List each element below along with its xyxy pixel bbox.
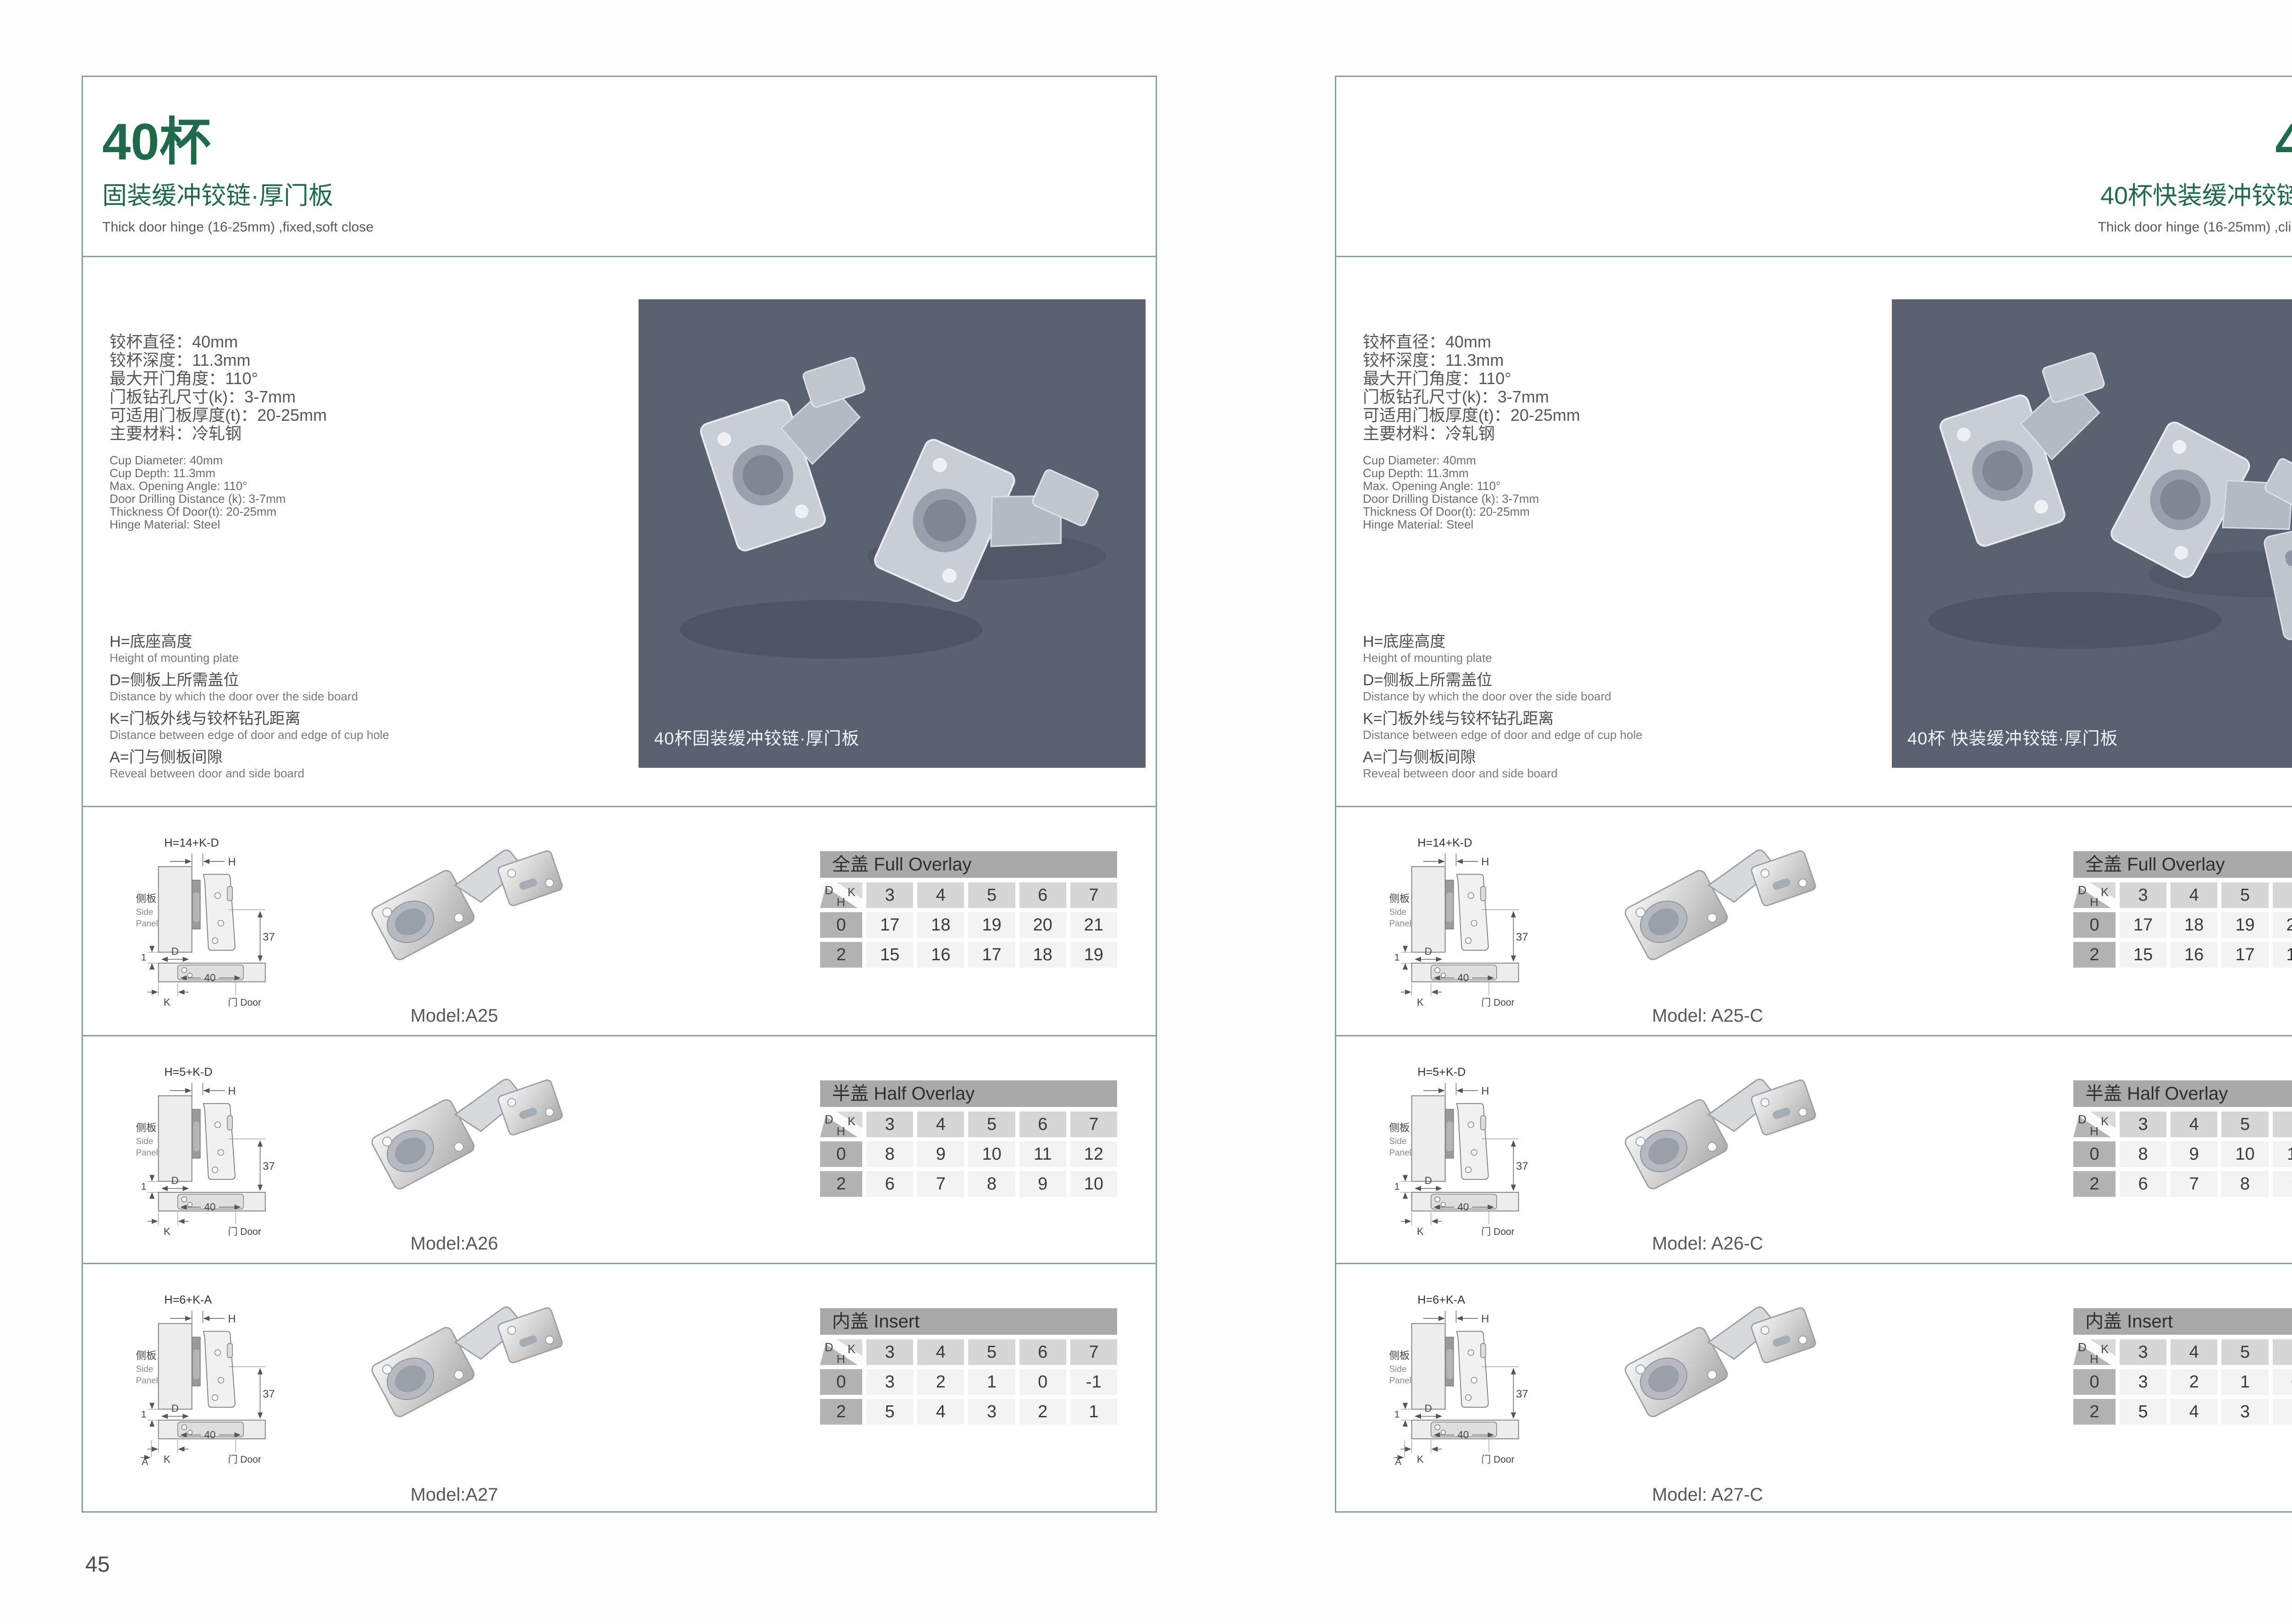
spec-line-en: Max. Opening Angle: 110°	[1363, 479, 1539, 492]
side-panel-label-en1: Side	[136, 908, 153, 917]
k-header-cell: 5	[2221, 1112, 2268, 1137]
value-cell: 9	[2171, 1141, 2217, 1167]
dim-one-label: 1	[1394, 1409, 1400, 1420]
spec-line-en: Door Drilling Distance (k): 3-7mm	[1363, 492, 1539, 505]
table-corner: D K H	[820, 1112, 862, 1137]
dim-a-label: A	[142, 1457, 148, 1467]
spec-line-en: Door Drilling Distance (k): 3-7mm	[110, 492, 286, 505]
installation-diagram: H=14+K-D H 侧板 Side Panel D 1 37	[1382, 814, 1533, 1027]
h-header-cell: 2	[2073, 1399, 2116, 1425]
side-panel-label-en2: Panel	[1389, 1376, 1411, 1386]
value-cell: 3	[866, 1369, 913, 1395]
value-cell: 9	[917, 1141, 964, 1167]
table-grid: D K H 34567 0 1718192021 2	[2073, 882, 2292, 968]
value-cell: 20	[1019, 912, 1066, 938]
legend-cn: D=侧板上所需盖位	[110, 671, 389, 689]
corner-k: K	[2101, 1342, 2109, 1356]
legend-en: Reveal between door and side board	[1363, 766, 1642, 780]
installation-diagram-drawing: H=6+K-A H 侧板 Side Panel D 1 37	[1382, 1271, 1533, 1484]
door-label: 门 Door	[228, 1226, 261, 1237]
page-right: 40杯 40杯快装缓冲铰链·厚门板 Thick door hinge (16-2…	[1335, 76, 2292, 1513]
installation-diagram: H=6+K-A H 侧板 Side Panel D 1 37	[1382, 1271, 1533, 1484]
spec-line-cn: 铰杯直径：40mm	[110, 333, 327, 351]
model-label: Model: A25-C	[1579, 1006, 1836, 1026]
dim-37-label: 37	[1516, 931, 1528, 943]
model-label: Model: A26-C	[1579, 1233, 1836, 1254]
photo-illustration	[1892, 299, 2292, 768]
value-cell: 2	[2171, 1369, 2217, 1395]
value-cell: 17	[866, 912, 913, 938]
installation-diagram-drawing: H=6+K-A H 侧板 Side Panel D 1 37	[129, 1271, 280, 1484]
k-header-cell: 6	[2273, 1112, 2292, 1137]
diagram-formula: H=6+K-A	[1417, 1294, 1465, 1306]
value-cell: 9	[2273, 1171, 2292, 1197]
corner-k: K	[2101, 885, 2109, 899]
corner-h: H	[2090, 1124, 2099, 1137]
diagram-formula: H=5+K-D	[164, 1066, 212, 1079]
hinge-photo-illustration	[639, 299, 1146, 768]
corner-k: K	[848, 1114, 856, 1128]
value-cell: 4	[917, 1399, 964, 1425]
side-panel-label-cn: 侧板	[136, 1122, 156, 1134]
model-label: Model:A27	[326, 1485, 583, 1505]
h-header-cell: 2	[2073, 942, 2116, 968]
legend-en: Distance between edge of door and edge o…	[110, 728, 389, 742]
k-header-cell: 4	[2171, 1112, 2217, 1137]
side-panel-label-en1: Side	[136, 1137, 153, 1146]
dim-40-label: 40	[1457, 1201, 1469, 1213]
side-panel-label-cn: 侧板	[1389, 1122, 1410, 1134]
diagram-formula: H=14+K-D	[164, 837, 219, 849]
value-cell: 9	[1019, 1171, 1066, 1197]
value-cell: 19	[968, 912, 1015, 938]
side-panel-label-en1: Side	[136, 1365, 153, 1374]
hinge-illustration	[326, 819, 583, 993]
value-cell: 8	[2120, 1141, 2166, 1167]
dim-one-label: 1	[1394, 952, 1400, 963]
value-cell: 3	[2120, 1369, 2166, 1395]
hinge-illustration	[1579, 1276, 1836, 1450]
value-cell: 2	[2273, 1399, 2292, 1425]
dim-one-label: 1	[141, 1182, 147, 1192]
legend-cn: K=门板外线与铰杯钻孔距离	[1363, 710, 1642, 728]
corner-d: D	[825, 1340, 833, 1354]
side-panel-label-en2: Panel	[1389, 919, 1411, 929]
door-label: 门 Door	[1481, 1454, 1515, 1465]
page-tagline: Thick door hinge (16-25mm) ,fixed,soft c…	[102, 220, 1130, 235]
spec-line-cn: 可适用门板厚度(t)：20-25mm	[110, 406, 327, 424]
k-header-cell: 5	[968, 1339, 1015, 1365]
overlay-table: 全盖 Full Overlay D K H 34567	[2073, 851, 2292, 968]
value-cell: 11	[2273, 1141, 2292, 1167]
value-cell: 4	[2171, 1399, 2217, 1425]
door-label: 门 Door	[228, 1454, 261, 1465]
h-header-cell: 2	[820, 1399, 862, 1425]
hinge-photo-illustration	[1892, 299, 2292, 768]
value-cell: 16	[917, 942, 964, 968]
hinge-illustration	[1579, 1048, 1836, 1222]
k-header-cell: 6	[1019, 1112, 1066, 1137]
dim-37-label: 37	[263, 1388, 275, 1400]
dim-one-label: 1	[1394, 1182, 1400, 1192]
side-panel-label-en1: Side	[1389, 1137, 1406, 1146]
dim-k-label: K	[164, 1453, 171, 1465]
hinge-product-illustration	[1579, 1048, 1836, 1222]
k-header-cell: 5	[968, 1112, 1015, 1137]
corner-h: H	[2090, 1352, 2099, 1365]
corner-k: K	[848, 885, 856, 899]
installation-diagram-drawing: H=5+K-D H 侧板 Side Panel D 1 37	[129, 1043, 280, 1256]
dim-k-label: K	[164, 1226, 171, 1237]
page-number-left: 45	[85, 1552, 110, 1577]
legend-cn: K=门板外线与铰杯钻孔距离	[110, 710, 389, 728]
k-header-cell: 5	[2221, 1339, 2268, 1365]
dim-37-label: 37	[263, 931, 275, 943]
diagram-formula: H=5+K-D	[1417, 1066, 1466, 1079]
legend-cn: A=门与侧板间隙	[110, 748, 389, 766]
legend-item: D=侧板上所需盖位 Distance by which the door ove…	[110, 671, 389, 703]
corner-d: D	[2078, 883, 2087, 897]
hinge-illustration	[326, 1048, 583, 1222]
legend-en: Distance by which the door over the side…	[1363, 689, 1642, 703]
installation-diagram: H=6+K-A H 侧板 Side Panel D 1 37	[129, 1271, 280, 1484]
product-row-insert: H=6+K-A H 侧板 Side Panel D 1 37	[1336, 1264, 2292, 1513]
dim-h-label: H	[1481, 1085, 1489, 1097]
page-tagline: Thick door hinge (16-25mm) ,clip on ,sof…	[1355, 220, 2292, 235]
installation-diagram-drawing: H=14+K-D H 侧板 Side Panel D 1 37	[129, 814, 280, 1027]
value-cell: 10	[968, 1141, 1015, 1167]
k-header-cell: 7	[1070, 882, 1117, 908]
page-left: 40杯 固装缓冲铰链·厚门板 Thick door hinge (16-25mm…	[82, 76, 1157, 1513]
corner-h: H	[2090, 895, 2099, 908]
value-cell: 12	[1070, 1141, 1117, 1167]
spec-line-en: Cup Depth: 11.3mm	[110, 467, 286, 479]
diagram-formula: H=14+K-D	[1417, 837, 1472, 849]
table-title: 全盖 Full Overlay	[820, 851, 1117, 878]
table-corner: D K H	[820, 1339, 862, 1365]
value-cell: 1	[968, 1369, 1015, 1395]
legend-en: Distance by which the door over the side…	[110, 689, 389, 703]
spec-line-cn: 门板钻孔尺寸(k)：3-7mm	[110, 388, 327, 406]
value-cell: 1	[2221, 1369, 2268, 1395]
legend-en: Distance between edge of door and edge o…	[1363, 728, 1642, 742]
dim-h-label: H	[228, 1085, 236, 1097]
overlay-table: 全盖 Full Overlay D K H 34567	[820, 851, 1117, 968]
legend-item: A=门与侧板间隙 Reveal between door and side bo…	[110, 748, 389, 780]
dim-d-label: D	[1425, 1403, 1432, 1414]
k-header-cell: 5	[2221, 882, 2268, 908]
photo-illustration	[639, 299, 1146, 768]
door-label: 门 Door	[1481, 1226, 1515, 1237]
page-subtitle: 40杯快装缓冲铰链·厚门板	[1355, 175, 2292, 211]
hinge-product-illustration	[326, 1048, 583, 1222]
value-cell: 19	[1070, 942, 1117, 968]
product-photo: 40杯 快装缓冲铰链·厚门板	[1892, 299, 2292, 768]
dim-one-label: 1	[141, 1409, 147, 1420]
value-cell: 3	[968, 1399, 1015, 1425]
specs-en: Cup Diameter: 40mmCup Depth: 11.3mmMax. …	[1363, 454, 1539, 531]
photo-caption: 40杯固装缓冲铰链·厚门板	[654, 724, 859, 749]
value-cell: -1	[1070, 1369, 1117, 1395]
value-cell: 17	[2120, 912, 2166, 938]
spec-line-cn: 最大开门角度：110°	[110, 369, 327, 388]
table-title: 半盖 Half Overlay	[820, 1080, 1117, 1107]
h-header-cell: 0	[820, 1369, 862, 1395]
k-header-cell: 3	[2120, 882, 2166, 908]
spec-line-en: Cup Diameter: 40mm	[1363, 454, 1539, 467]
value-cell: 7	[2171, 1171, 2217, 1197]
h-header-cell: 2	[820, 1171, 862, 1197]
value-cell: 8	[866, 1141, 913, 1167]
corner-h: H	[837, 895, 845, 908]
dim-37-label: 37	[1516, 1160, 1528, 1173]
value-cell: 18	[2273, 942, 2292, 968]
installation-diagram-drawing: H=5+K-D H 侧板 Side Panel D 1 37	[1382, 1043, 1533, 1256]
k-header-cell: 4	[917, 882, 964, 908]
dim-k-label: K	[164, 996, 171, 1008]
value-cell: 16	[2171, 942, 2217, 968]
table-grid: D K H 34567 0 3210-1 2 543	[820, 1339, 1117, 1425]
value-cell: 6	[2120, 1171, 2166, 1197]
dim-40-label: 40	[204, 972, 215, 984]
dim-d-label: D	[171, 1175, 179, 1186]
side-panel-label-en2: Panel	[136, 1376, 158, 1386]
legend-en: Height of mounting plate	[110, 651, 389, 665]
side-panel-label-cn: 侧板	[136, 893, 156, 904]
value-cell: 10	[1070, 1171, 1117, 1197]
spec-line-en: Thickness Of Door(t): 20-25mm	[110, 505, 286, 518]
dim-40-label: 40	[204, 1429, 215, 1441]
h-header-cell: 0	[820, 1141, 862, 1167]
spec-line-cn: 铰杯深度：11.3mm	[110, 351, 327, 369]
spec-line-cn: 铰杯深度：11.3mm	[1363, 351, 1580, 369]
corner-h: H	[837, 1352, 845, 1365]
k-header-cell: 6	[1019, 882, 1066, 908]
model-label: Model:A26	[326, 1233, 583, 1254]
dim-h-label: H	[1481, 856, 1489, 868]
k-header-cell: 3	[2120, 1339, 2166, 1365]
side-panel-label-en1: Side	[1389, 1365, 1406, 1374]
dim-a-label: A	[1395, 1457, 1401, 1467]
value-cell: 0	[1019, 1369, 1066, 1395]
spec-line-en: Thickness Of Door(t): 20-25mm	[1363, 505, 1539, 518]
specs-en: Cup Diameter: 40mmCup Depth: 11.3mmMax. …	[110, 454, 286, 531]
installation-diagram: H=5+K-D H 侧板 Side Panel D 1 37	[129, 1043, 280, 1256]
hinge-illustration	[1579, 819, 1836, 993]
spec-line-cn: 最大开门角度：110°	[1363, 369, 1580, 388]
value-cell: 3	[2221, 1399, 2268, 1425]
page-header: 40杯 固装缓冲铰链·厚门板 Thick door hinge (16-25mm…	[83, 77, 1156, 256]
dimension-legend: H=底座高度 Height of mounting plate D=侧板上所需盖…	[110, 633, 389, 787]
specs-cn: 铰杯直径：40mm铰杯深度：11.3mm最大开门角度：110°门板钻孔尺寸(k)…	[110, 333, 327, 443]
value-cell: 11	[1019, 1141, 1066, 1167]
k-header-cell: 4	[917, 1339, 964, 1365]
k-header-cell: 6	[1019, 1339, 1066, 1365]
corner-k: K	[848, 1342, 856, 1356]
value-cell: 19	[2221, 912, 2268, 938]
spec-line-cn: 铰杯直径：40mm	[1363, 333, 1580, 351]
value-cell: 20	[2273, 912, 2292, 938]
page-header: 40杯 40杯快装缓冲铰链·厚门板 Thick door hinge (16-2…	[1336, 77, 2292, 256]
dim-37-label: 37	[1516, 1388, 1528, 1400]
hinge-product-illustration	[1579, 1276, 1836, 1450]
hinge-product-illustration	[1579, 819, 1836, 993]
h-header-cell: 2	[820, 942, 862, 968]
table-title: 内盖 Insert	[2073, 1308, 2292, 1335]
door-label: 门 Door	[228, 997, 261, 1008]
h-header-cell: 2	[2073, 1171, 2116, 1197]
legend-item: H=底座高度 Height of mounting plate	[110, 633, 389, 665]
value-cell: 8	[968, 1171, 1015, 1197]
corner-d: D	[825, 883, 833, 897]
door-label: 门 Door	[1481, 997, 1515, 1008]
installation-diagram-drawing: H=14+K-D H 侧板 Side Panel D 1 37	[1382, 814, 1533, 1027]
k-header-cell: 4	[2171, 1339, 2217, 1365]
k-header-cell: 3	[866, 882, 913, 908]
product-photo: 40杯固装缓冲铰链·厚门板	[639, 299, 1146, 768]
value-cell: 1	[1070, 1399, 1117, 1425]
overlay-table: 内盖 Insert D K H 34567 0	[820, 1308, 1117, 1425]
value-cell: 6	[866, 1171, 913, 1197]
dim-h-label: H	[1481, 1313, 1489, 1325]
dim-a-group: A	[1394, 1440, 1405, 1467]
dim-h-label: H	[228, 1313, 236, 1325]
installation-diagram: H=14+K-D H 侧板 Side Panel D 1 37	[129, 814, 280, 1027]
spec-line-en: Cup Depth: 11.3mm	[1363, 467, 1539, 479]
table-title: 内盖 Insert	[820, 1308, 1117, 1335]
legend-cn: D=侧板上所需盖位	[1363, 671, 1642, 689]
spec-line-cn: 主要材料：冷轧钢	[1363, 424, 1580, 443]
legend-cn: H=底座高度	[1363, 633, 1642, 651]
spec-line-cn: 主要材料：冷轧钢	[110, 424, 327, 443]
legend-item: K=门板外线与铰杯钻孔距离 Distance between edge of d…	[110, 710, 389, 742]
dim-40-label: 40	[1457, 1429, 1469, 1441]
product-row-half-overlay: H=5+K-D H 侧板 Side Panel D 1 37	[83, 1036, 1156, 1261]
specs-cn: 铰杯直径：40mm铰杯深度：11.3mm最大开门角度：110°门板钻孔尺寸(k)…	[1363, 333, 1580, 443]
k-header-cell: 3	[866, 1339, 913, 1365]
value-cell: 17	[2221, 942, 2268, 968]
k-header-cell: 3	[2120, 1112, 2166, 1137]
dim-k-label: K	[1417, 996, 1424, 1008]
table-corner: D K H	[820, 882, 862, 908]
page-subtitle: 固装缓冲铰链·厚门板	[102, 175, 1130, 211]
value-cell: 21	[1070, 912, 1117, 938]
dim-d-label: D	[171, 1403, 179, 1414]
legend-item: K=门板外线与铰杯钻孔距离 Distance between edge of d…	[1363, 710, 1642, 742]
corner-h: H	[837, 1124, 845, 1137]
h-header-cell: 0	[2073, 912, 2116, 938]
k-header-cell: 6	[2273, 882, 2292, 908]
spec-line-cn: 可适用门板厚度(t)：20-25mm	[1363, 406, 1580, 424]
legend-item: D=侧板上所需盖位 Distance by which the door ove…	[1363, 671, 1642, 703]
divider	[83, 256, 1156, 257]
legend-en: Height of mounting plate	[1363, 651, 1642, 665]
table-title: 半盖 Half Overlay	[2073, 1080, 2292, 1107]
k-header-cell: 4	[2171, 882, 2217, 908]
h-header-cell: 0	[2073, 1369, 2116, 1395]
product-row-insert: H=6+K-A H 侧板 Side Panel D 1 37	[83, 1264, 1156, 1513]
corner-d: D	[2078, 1112, 2087, 1126]
table-corner: D K H	[2073, 882, 2116, 908]
table-grid: D K H 34567 0 3210-1 2 543	[2073, 1339, 2292, 1425]
legend-cn: H=底座高度	[110, 633, 389, 651]
side-panel-label-en2: Panel	[136, 1148, 158, 1158]
dim-40-label: 40	[204, 1201, 215, 1213]
h-header-cell: 0	[820, 912, 862, 938]
side-panel-label-cn: 侧板	[1389, 893, 1410, 904]
value-cell: 2	[1019, 1399, 1066, 1425]
model-label: Model:A25	[326, 1006, 583, 1026]
dim-d-label: D	[1425, 1175, 1432, 1186]
dim-a-group: A	[140, 1440, 151, 1467]
k-header-cell: 7	[1070, 1339, 1117, 1365]
value-cell: 17	[968, 942, 1015, 968]
corner-d: D	[2078, 1340, 2087, 1354]
corner-k: K	[2101, 1114, 2109, 1128]
k-header-cell: 6	[2273, 1339, 2292, 1365]
overlay-table: 半盖 Half Overlay D K H 34567	[820, 1080, 1117, 1197]
legend-item: H=底座高度 Height of mounting plate	[1363, 633, 1642, 665]
table-grid: D K H 34567 0 1718192021 2	[820, 882, 1117, 968]
legend-item: A=门与侧板间隙 Reveal between door and side bo…	[1363, 748, 1642, 780]
dim-37-label: 37	[263, 1160, 275, 1173]
overlay-table: 半盖 Half Overlay D K H 34567	[2073, 1080, 2292, 1197]
side-panel-label-en1: Side	[1389, 908, 1406, 917]
value-cell: 18	[917, 912, 964, 938]
k-header-cell: 4	[917, 1112, 964, 1137]
spec-line-en: Cup Diameter: 40mm	[110, 454, 286, 467]
value-cell: 15	[866, 942, 913, 968]
diagram-formula: H=6+K-A	[164, 1294, 212, 1306]
dim-h-label: H	[228, 856, 236, 868]
value-cell: 18	[1019, 942, 1066, 968]
overlay-table: 内盖 Insert D K H 34567 0	[2073, 1308, 2292, 1425]
k-header-cell: 3	[866, 1112, 913, 1137]
spec-line-en: Hinge Material: Steel	[1363, 518, 1539, 531]
value-cell: 7	[917, 1171, 964, 1197]
page-title: 40杯	[1355, 116, 2292, 168]
spec-line-en: Hinge Material: Steel	[110, 518, 286, 531]
catalog-spread: 40杯 固装缓冲铰链·厚门板 Thick door hinge (16-25mm…	[0, 0, 2292, 1624]
table-corner: D K H	[2073, 1339, 2116, 1365]
dim-d-label: D	[1425, 946, 1432, 957]
k-header-cell: 5	[968, 882, 1015, 908]
value-cell: 8	[2221, 1171, 2268, 1197]
value-cell: 18	[2171, 912, 2217, 938]
side-panel-label-cn: 侧板	[136, 1350, 156, 1361]
dim-k-label: K	[1417, 1453, 1424, 1465]
table-corner: D K H	[2073, 1112, 2116, 1137]
value-cell: 15	[2120, 942, 2166, 968]
side-panel-label-en2: Panel	[1389, 1148, 1411, 1158]
hinge-product-illustration	[326, 819, 583, 993]
value-cell: 5	[2120, 1399, 2166, 1425]
dim-40-label: 40	[1457, 972, 1469, 984]
dim-k-label: K	[1417, 1226, 1424, 1237]
table-title: 全盖 Full Overlay	[2073, 851, 2292, 878]
dimension-legend: H=底座高度 Height of mounting plate D=侧板上所需盖…	[1363, 633, 1642, 787]
spec-line-en: Max. Opening Angle: 110°	[110, 479, 286, 492]
page-title: 40杯	[102, 116, 1130, 168]
divider	[1336, 256, 2292, 257]
hinge-product-illustration	[326, 1276, 583, 1450]
side-panel-label-en2: Panel	[136, 919, 158, 929]
value-cell: 10	[2221, 1141, 2268, 1167]
value-cell: 5	[866, 1399, 913, 1425]
corner-d: D	[825, 1112, 833, 1126]
product-row-full-overlay: H=14+K-D H 侧板 Side Panel D 1 37	[1336, 807, 2292, 1034]
photo-caption: 40杯 快装缓冲铰链·厚门板	[1907, 724, 2118, 749]
